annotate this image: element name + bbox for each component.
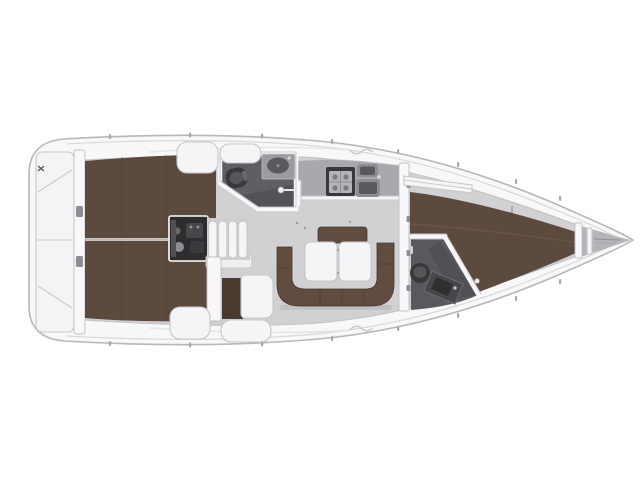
- engine-rail: [171, 220, 176, 257]
- sink-lower-bowl: [359, 182, 377, 194]
- sofa-shadow: [280, 305, 392, 310]
- anchor-locker-divider: [587, 228, 592, 254]
- sole-fitting-2: [304, 227, 306, 229]
- yacht-floor-plan: [0, 0, 640, 480]
- deck-locker-bottom-aft: [170, 307, 210, 339]
- table-leaf-right: [339, 242, 371, 281]
- sofa-back-cushion: [318, 227, 367, 243]
- table-hinge-1: [337, 249, 339, 251]
- bulkhead-hinge-2: [407, 216, 411, 222]
- step-3: [229, 221, 238, 258]
- deck-locker-top-aft: [177, 142, 218, 173]
- aft-cabin-entry-floor: [222, 278, 243, 319]
- vanity-faucet: [453, 286, 456, 289]
- shower-mixer-knob: [278, 187, 284, 193]
- sink-faucet: [377, 175, 381, 179]
- table-hinge-2: [337, 272, 339, 274]
- aft-bulkhead-latch-bottom: [76, 256, 83, 267]
- stove: [326, 167, 355, 196]
- deck-cleat-starboard: [475, 279, 480, 284]
- bulkhead-hinge-3: [407, 250, 411, 256]
- aft-head-faucet: [287, 156, 290, 159]
- table-leaf-left: [305, 242, 337, 281]
- engine-manifold: [190, 241, 204, 253]
- step-4: [239, 221, 248, 258]
- aft-bulkhead-latch-top: [76, 206, 83, 217]
- burner-1: [332, 174, 337, 179]
- burner-3: [332, 185, 337, 190]
- chain-locker-bulkhead: [575, 223, 582, 258]
- galley: [295, 160, 404, 207]
- floor-plan-svg: [0, 0, 640, 480]
- galley-sink: [356, 164, 381, 197]
- companionway-steps: [207, 218, 250, 260]
- forward-head-door-handle: [410, 246, 413, 254]
- aft-bulkhead: [74, 150, 85, 334]
- engine-cap-2: [197, 226, 200, 229]
- aft-head-basin-drain: [277, 164, 280, 167]
- sole-fitting-1: [296, 222, 298, 224]
- deck-locker-bottom-mid: [221, 320, 271, 342]
- forward-head-top-wall: [409, 234, 447, 239]
- burner-4: [343, 185, 348, 190]
- sole-fitting-3: [349, 221, 351, 223]
- engine-block: [186, 223, 203, 238]
- burner-2: [343, 174, 348, 179]
- engine-cap-1: [190, 226, 193, 229]
- forward-head-toilet-seat: [414, 266, 427, 277]
- salon-aft-wall: [207, 257, 221, 321]
- galley-fiddle-rail: [296, 196, 404, 200]
- nav-seat: [241, 275, 273, 318]
- transom-platform: [36, 152, 74, 332]
- bulkhead-hinge-4: [407, 285, 411, 291]
- deck-locker-top-mid: [220, 144, 261, 163]
- stern-transom: [36, 150, 85, 334]
- sink-upper-bowl: [360, 167, 375, 176]
- step-2: [219, 221, 228, 258]
- step-1: [209, 221, 218, 258]
